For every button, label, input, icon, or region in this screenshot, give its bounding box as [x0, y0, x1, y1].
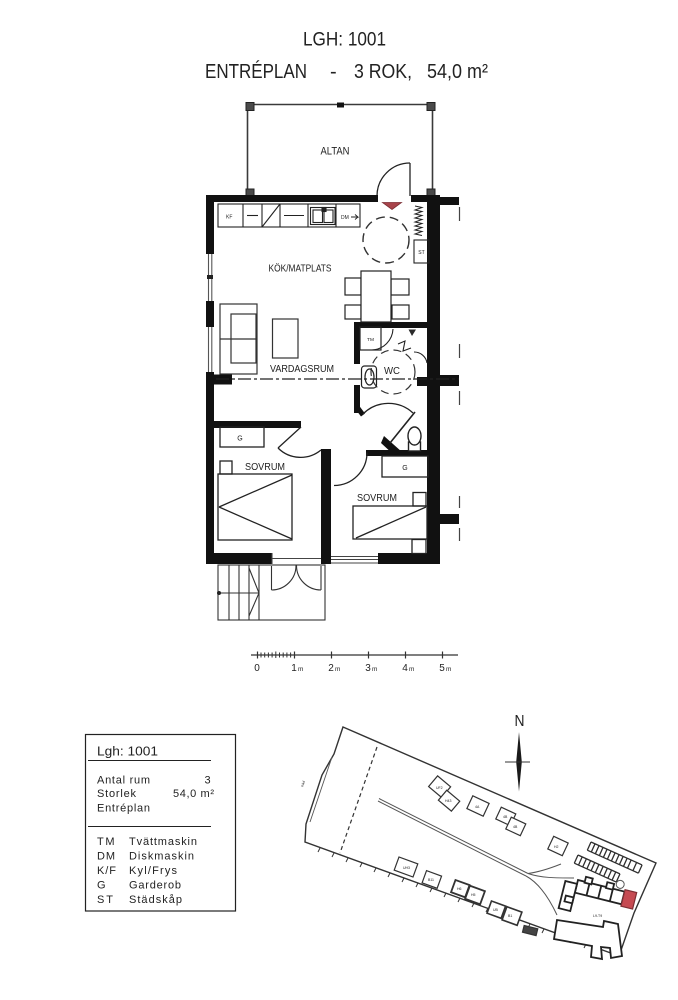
svg-text:ENTRÉPLAN: ENTRÉPLAN [205, 60, 307, 83]
svg-text:H5: H5 [471, 893, 476, 897]
svg-text:WC: WC [384, 366, 400, 377]
svg-text:KÖK/MATPLATS: KÖK/MATPLATS [269, 263, 332, 275]
svg-text:2: 2 [328, 663, 334, 674]
svg-text:G: G [402, 465, 407, 472]
svg-text:4B: 4B [513, 825, 518, 829]
svg-text:H2: H2 [554, 845, 559, 849]
svg-text:m: m [372, 666, 377, 673]
svg-text:m: m [446, 666, 451, 673]
svg-text:H6: H6 [457, 887, 462, 891]
svg-text:G: G [237, 436, 242, 443]
svg-text:3 ROK,: 3 ROK, [354, 61, 412, 83]
svg-text:3: 3 [365, 663, 371, 674]
svg-text:K/F: K/F [97, 865, 116, 877]
svg-text:UF2: UF2 [436, 786, 443, 790]
svg-text:m: m [409, 666, 414, 673]
svg-text:SOVRUM: SOVRUM [357, 493, 397, 504]
svg-text:Tvättmaskin: Tvättmaskin [129, 836, 197, 848]
svg-text:Storlek: Storlek [97, 788, 137, 800]
svg-text:m: m [298, 666, 303, 673]
svg-text:DM: DM [341, 215, 349, 221]
svg-text:m: m [335, 666, 340, 673]
svg-text:B11: B11 [428, 878, 434, 882]
svg-text:ST: ST [418, 250, 424, 256]
svg-text:LGH: 1001: LGH: 1001 [303, 30, 386, 51]
svg-text:54,0 m²: 54,0 m² [427, 61, 488, 83]
svg-text:-: - [330, 61, 337, 83]
svg-text:H43: H43 [445, 799, 451, 803]
svg-text:1: 1 [291, 663, 297, 674]
svg-text:N: N [515, 713, 525, 730]
svg-text:TM: TM [97, 836, 115, 848]
svg-text:Garderob: Garderob [129, 880, 181, 892]
svg-text:TM: TM [367, 337, 374, 343]
svg-text:Kyl/Frys: Kyl/Frys [129, 865, 178, 877]
svg-text:Antal rum: Antal rum [97, 775, 150, 787]
svg-text:4A: 4A [475, 805, 480, 809]
svg-text:0: 0 [254, 663, 260, 674]
svg-text:5: 5 [439, 663, 445, 674]
svg-text:Städskåp: Städskåp [129, 894, 182, 906]
svg-text:UH3: UH3 [403, 866, 410, 870]
svg-text:4B: 4B [503, 815, 508, 819]
svg-text:UB: UB [493, 908, 499, 912]
svg-text:ALTAN: ALTAN [321, 146, 350, 158]
svg-text:G: G [97, 880, 106, 892]
svg-text:VARDAGSRUM: VARDAGSRUM [270, 364, 334, 375]
svg-text:Diskmaskin: Diskmaskin [129, 851, 194, 863]
svg-text:3: 3 [205, 775, 211, 787]
svg-text:4: 4 [402, 663, 408, 674]
svg-text:Entréplan: Entréplan [97, 803, 150, 815]
svg-text:SOVRUM: SOVRUM [245, 462, 285, 473]
svg-text:B1: B1 [508, 914, 512, 918]
svg-text:L9-T9: L9-T9 [593, 914, 602, 918]
svg-text:DM: DM [97, 851, 115, 863]
svg-text:KF: KF [226, 215, 232, 221]
svg-text:54,0 m²: 54,0 m² [173, 788, 214, 800]
svg-text:Lgh: 1001: Lgh: 1001 [97, 745, 158, 759]
